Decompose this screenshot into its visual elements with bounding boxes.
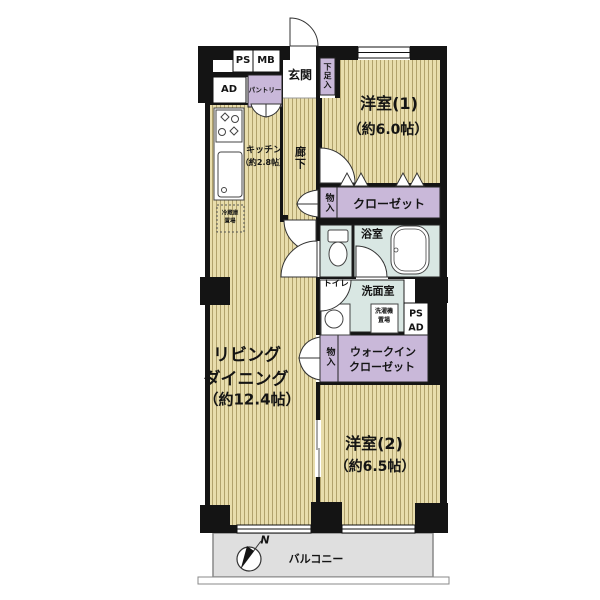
- floorplan-canvas: PS MB AD パントリー 玄関 下足入 洋室(1) （約6.0帖） クローゼ…: [0, 0, 600, 600]
- label-ad2: AD: [408, 323, 423, 333]
- walkin-closet-box: [338, 335, 428, 382]
- label-wic-line2: クローゼット: [349, 362, 415, 373]
- living-balcony-window: [237, 525, 311, 533]
- column: [200, 505, 230, 533]
- label-fridge-line1: 冷蔵庫: [222, 211, 239, 217]
- wall-segment: [316, 277, 320, 332]
- sink-icon: [218, 152, 242, 197]
- label-washer-line2: 置場: [378, 318, 390, 324]
- label-living-line1: リビング: [213, 348, 281, 365]
- wall-segment: [316, 225, 320, 241]
- column: [415, 277, 448, 303]
- label-washer-line1: 洗濯機: [375, 309, 393, 315]
- label-shoe-box: 下足入: [323, 63, 331, 90]
- label-room1-name: 洋室(1): [360, 96, 418, 112]
- wall-segment: [335, 46, 340, 98]
- label-pantry: パントリー: [249, 87, 282, 94]
- label-kitchen-name: キッチン: [246, 147, 282, 156]
- wall-segment: [316, 183, 447, 187]
- label-wic-line1: ウォークイン: [350, 347, 416, 358]
- floorplan-drawing: [0, 0, 600, 600]
- toilet-icon: [328, 230, 348, 266]
- column: [415, 503, 448, 533]
- label-closet: クローゼット: [353, 198, 425, 210]
- label-washroom: 洗面室: [362, 286, 395, 297]
- label-ad: AD: [221, 85, 237, 95]
- wall-segment: [316, 218, 447, 225]
- balcony-ledge: [198, 577, 449, 584]
- label-mb: MB: [257, 56, 275, 66]
- label-room2-size: （約6.5帖）: [335, 460, 416, 474]
- label-fridge-line2: 置場: [224, 219, 235, 225]
- label-kitchen-size: （約2.8帖）: [241, 159, 287, 167]
- wall-segment: [280, 46, 290, 60]
- column: [311, 502, 342, 533]
- label-living-line2: ダイニング: [204, 372, 289, 389]
- column: [200, 277, 230, 305]
- label-living-size: （約12.4帖）: [203, 393, 300, 408]
- label-entrance: 玄関: [288, 69, 312, 81]
- room2-balcony-window: [342, 525, 415, 533]
- label-corridor: 廊下: [295, 146, 306, 170]
- room1-window: [358, 47, 410, 58]
- wall-segment: [428, 303, 447, 385]
- wall-segment: [230, 525, 237, 533]
- label-ps: PS: [236, 56, 251, 66]
- entrance-door-swing: [290, 18, 318, 46]
- wall-segment: [198, 46, 235, 60]
- label-ps2: PS: [409, 309, 423, 319]
- label-room2-name: 洋室(2): [345, 436, 403, 452]
- label-room1-size: （約6.0帖）: [348, 123, 429, 137]
- label-balcony: バルコニー: [289, 554, 344, 565]
- label-storage-lower: 物入: [325, 347, 334, 367]
- sliding-door: [315, 420, 321, 477]
- label-storage-upper: 物入: [324, 193, 333, 213]
- label-north: N: [260, 535, 269, 546]
- bathtub-icon: [391, 226, 429, 274]
- wall-segment: [316, 98, 322, 148]
- label-bath: 浴室: [361, 229, 383, 240]
- label-toilet: トイレ: [323, 280, 349, 289]
